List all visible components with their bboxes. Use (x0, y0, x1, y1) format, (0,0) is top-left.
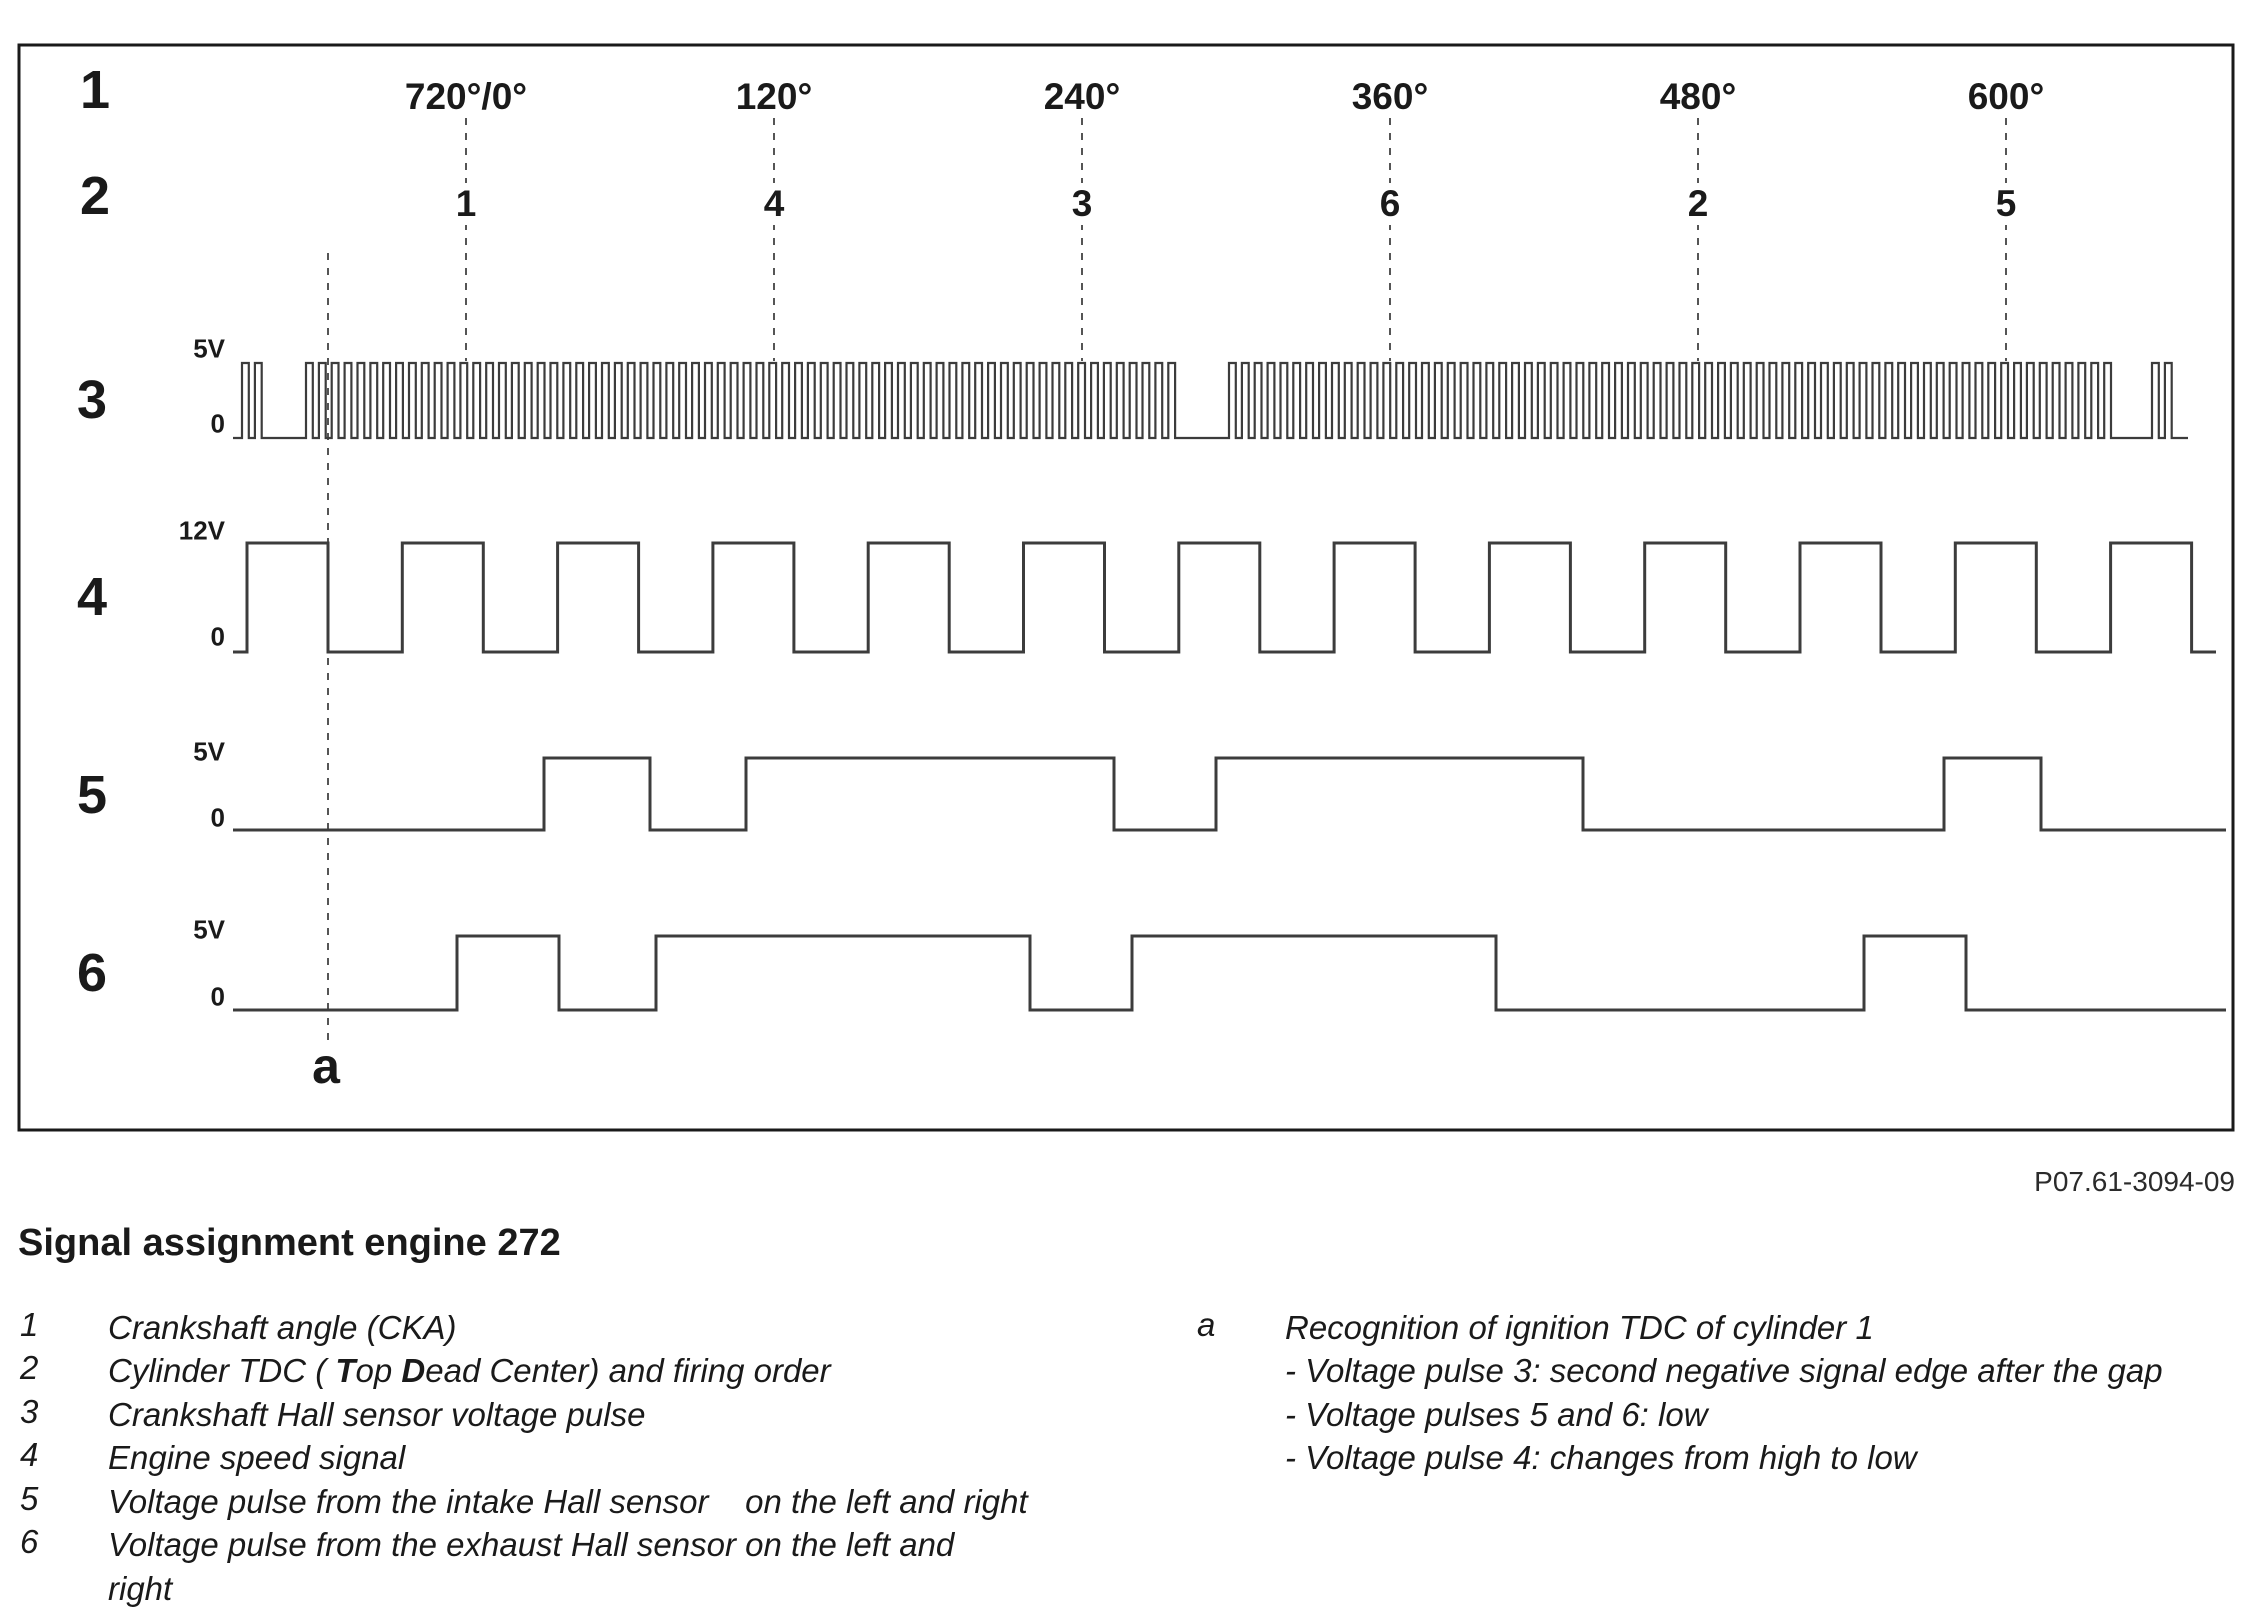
legend-num-4: 4 (20, 1436, 38, 1474)
legend-text-2-bold-d: D (401, 1352, 425, 1389)
row-label-3: 3 (77, 369, 107, 431)
legend-text-a: Recognition of ignition TDC of cylinder … (1285, 1306, 2245, 1350)
row4-zero-label: 0 (135, 622, 225, 653)
degree-label-240: 240° (1044, 76, 1121, 118)
legend-text-5: Voltage pulse from the intake Hall senso… (108, 1480, 1168, 1524)
legend-num-1: 1 (20, 1306, 38, 1344)
firing-order-6: 5 (1990, 183, 2023, 225)
degree-label-480: 480° (1660, 76, 1737, 118)
degree-label-120: 120° (736, 76, 813, 118)
row-label-6: 6 (77, 942, 107, 1004)
row-label-4: 4 (77, 566, 107, 628)
legend-text-6: Voltage pulse from the exhaust Hall sens… (108, 1523, 1168, 1609)
intake-hall-waveform (233, 758, 2226, 830)
diagram-border (19, 45, 2233, 1130)
page-title: Signal assignment engine 272 (18, 1222, 561, 1265)
row3-high-voltage-label: 5V (135, 334, 225, 365)
legend-num-a: a (1197, 1306, 1215, 1344)
firing-order-4: 6 (1374, 183, 1407, 225)
degree-label-600: 600° (1968, 76, 2045, 118)
firing-order-2: 4 (758, 183, 791, 225)
legend-text-a3: - Voltage pulse 4: changes from high to … (1285, 1436, 2245, 1480)
row3-zero-label: 0 (135, 409, 225, 440)
row-label-2: 2 (80, 165, 110, 227)
legend-text-2-part: ead Center) and firing order (425, 1352, 830, 1389)
page: 1 2 3 4 5 6 720°/0° 120° 240° 360° 480° … (0, 0, 2253, 1609)
figure-code: P07.61-3094-09 (2034, 1166, 2235, 1198)
crankshaft-hall-waveform (233, 363, 2188, 438)
legend-num-2: 2 (20, 1349, 38, 1387)
row4-high-voltage-label: 12V (135, 516, 225, 547)
engine-speed-waveform (233, 543, 2216, 652)
tdc-marker-label: a (312, 1037, 340, 1095)
row-label-5: 5 (77, 764, 107, 826)
row6-high-voltage-label: 5V (135, 915, 225, 946)
degree-label-720-0: 720°/0° (405, 76, 527, 118)
legend-text-2: Cylinder TDC ( Top Dead Center) and firi… (108, 1349, 1168, 1393)
exhaust-hall-waveform (233, 936, 2226, 1010)
legend-num-3: 3 (20, 1393, 38, 1431)
firing-order-5: 2 (1682, 183, 1715, 225)
row-label-1: 1 (80, 59, 110, 121)
legend-text-2-part: Cylinder TDC ( (108, 1352, 335, 1389)
firing-order-3: 3 (1066, 183, 1099, 225)
legend-num-5: 5 (20, 1480, 38, 1518)
legend-text-a1: - Voltage pulse 3: second negative signa… (1285, 1349, 2245, 1393)
legend-text-1: Crankshaft angle (CKA) (108, 1306, 1168, 1350)
legend-text-2-part: op (356, 1352, 402, 1389)
degree-label-360: 360° (1352, 76, 1429, 118)
legend-text-4: Engine speed signal (108, 1436, 1168, 1480)
legend-text-2-bold-t: T (335, 1352, 355, 1389)
legend-text-a2: - Voltage pulses 5 and 6: low (1285, 1393, 2245, 1437)
legend-text-3: Crankshaft Hall sensor voltage pulse (108, 1393, 1168, 1437)
row5-high-voltage-label: 5V (135, 737, 225, 768)
row6-zero-label: 0 (135, 982, 225, 1013)
legend-num-6: 6 (20, 1523, 38, 1561)
firing-order-1: 1 (450, 183, 483, 225)
row5-zero-label: 0 (135, 803, 225, 834)
